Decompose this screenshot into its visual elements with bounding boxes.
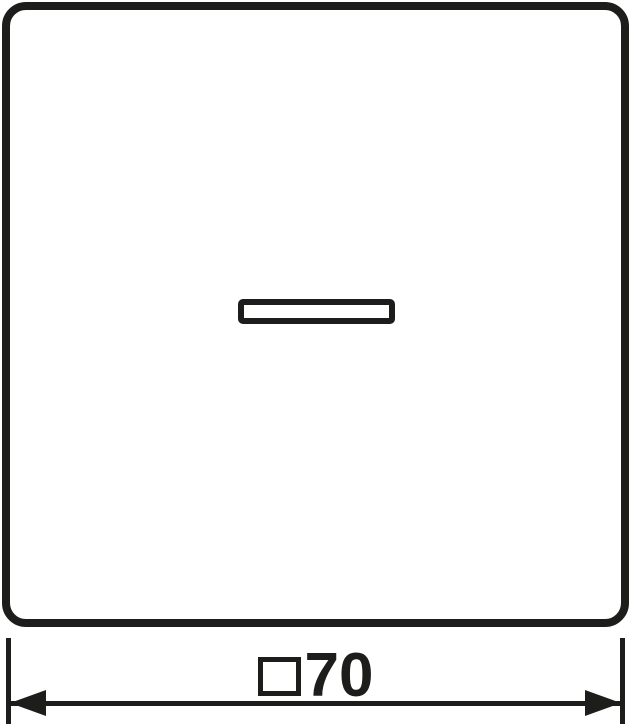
dimension-label: 70 [0, 645, 631, 707]
dimension-value: 70 [305, 641, 374, 710]
square-outline-icon [258, 657, 301, 696]
indicator-window [238, 299, 395, 324]
technical-drawing: 70 [0, 0, 631, 724]
